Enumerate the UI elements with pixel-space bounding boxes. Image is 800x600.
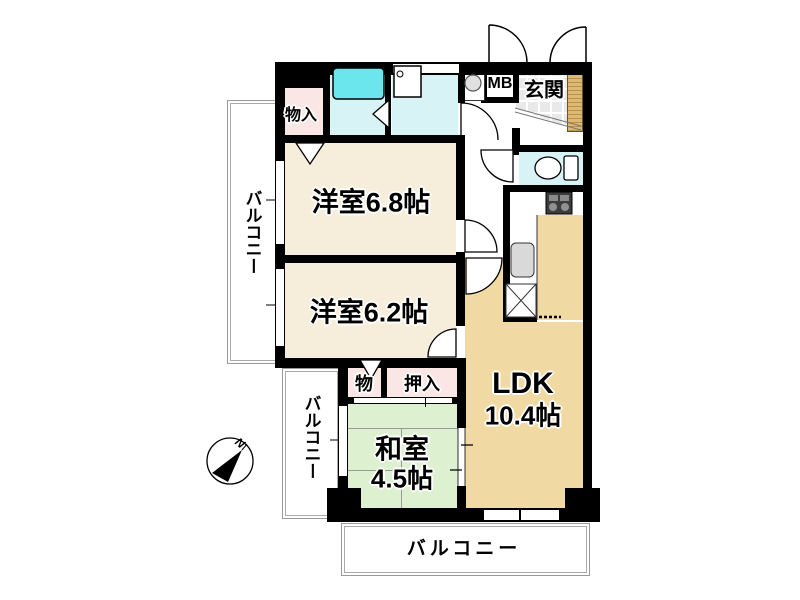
washing-machine: [394, 66, 421, 97]
genkan-step-lines: [515, 108, 581, 130]
bathtub: [333, 68, 384, 99]
japanese-ldk-slider-ticks: [450, 445, 473, 470]
stove-grill: [549, 195, 558, 201]
stove-burner: [549, 203, 557, 211]
monoire-label: 物入: [285, 101, 317, 125]
balcony-left-upper-label: バルコニー: [240, 190, 265, 275]
mono-label: 物: [355, 370, 373, 396]
washroom-door-arc: [461, 103, 498, 140]
balcony-bottom-label: バルコニー: [407, 534, 522, 561]
monoire-door-icon: [296, 143, 324, 164]
ldk-size: 10.4帖: [485, 396, 562, 433]
japanese-room-size: 4.5帖: [371, 459, 433, 496]
stove-grill: [560, 195, 569, 201]
western-room1-label: 洋室6.8帖: [312, 181, 431, 220]
western2-door-arc: [428, 329, 456, 357]
toilet-tank: [564, 156, 578, 180]
bath-folding-door-icon: [373, 100, 389, 128]
floor-plan: N 洋室6.8帖 洋室6.2帖 和室 4.5帖 LDK 10.4帖 物入 物 押…: [0, 0, 800, 600]
balcony-left-lower-label: バルコニー: [299, 395, 324, 480]
entry-door-arc-right: [550, 27, 586, 63]
western1-door-arc: [465, 220, 497, 252]
western-room2-label: 洋室6.2帖: [310, 291, 429, 330]
mb-label: MB: [488, 75, 513, 93]
toilet-bowl: [535, 157, 561, 179]
kitchen-sink: [511, 243, 534, 277]
toilet-door-arc: [481, 150, 513, 182]
entry-door-arc-left: [489, 25, 527, 63]
washbasin: [465, 75, 481, 91]
stove-burner: [561, 203, 569, 211]
ldk-door-arc: [466, 258, 502, 294]
japanese-ldk-slider: [458, 428, 465, 486]
oshiire-label: 押入: [404, 370, 440, 396]
genkan-label: 玄関: [524, 74, 564, 103]
